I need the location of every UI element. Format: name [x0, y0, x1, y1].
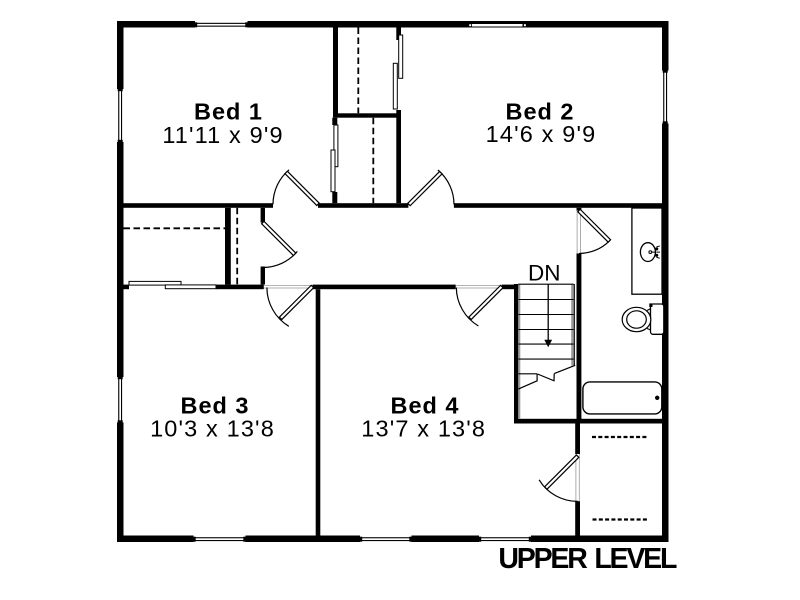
svg-text:11'11 x 9'9: 11'11 x 9'9 — [162, 122, 283, 148]
svg-text:Bed 4: Bed 4 — [391, 392, 460, 418]
svg-text:Bed 1: Bed 1 — [194, 98, 263, 124]
svg-text:14'6 x 9'9: 14'6 x 9'9 — [486, 121, 597, 147]
svg-text:UPPER LEVEL: UPPER LEVEL — [498, 543, 677, 575]
svg-text:13'7 x 13'8: 13'7 x 13'8 — [361, 416, 486, 442]
svg-text:10'3 x 13'8: 10'3 x 13'8 — [150, 416, 275, 442]
svg-text:DN: DN — [528, 261, 561, 286]
svg-text:Bed 3: Bed 3 — [181, 392, 250, 418]
